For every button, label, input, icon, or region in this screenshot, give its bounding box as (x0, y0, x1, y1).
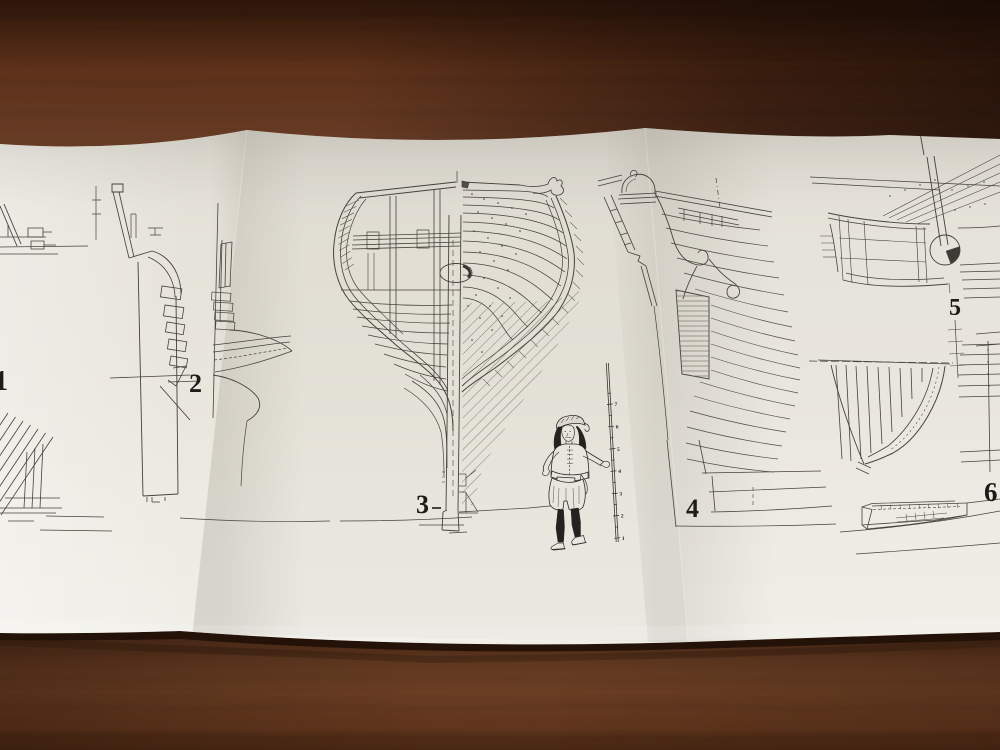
svg-text:7: 7 (615, 402, 618, 408)
svg-text:1: 1 (622, 536, 625, 542)
svg-text:3: 3 (619, 491, 622, 497)
svg-text:2: 2 (189, 369, 202, 398)
svg-text:2: 2 (621, 514, 624, 520)
svg-text:4: 4 (686, 494, 699, 523)
svg-text:6: 6 (616, 425, 619, 431)
svg-text:6: 6 (984, 477, 998, 507)
svg-text:1: 1 (0, 366, 8, 397)
svg-text:5: 5 (949, 295, 961, 321)
svg-text:3: 3 (416, 490, 429, 519)
svg-text:4: 4 (618, 469, 621, 475)
svg-text:5: 5 (617, 447, 620, 453)
